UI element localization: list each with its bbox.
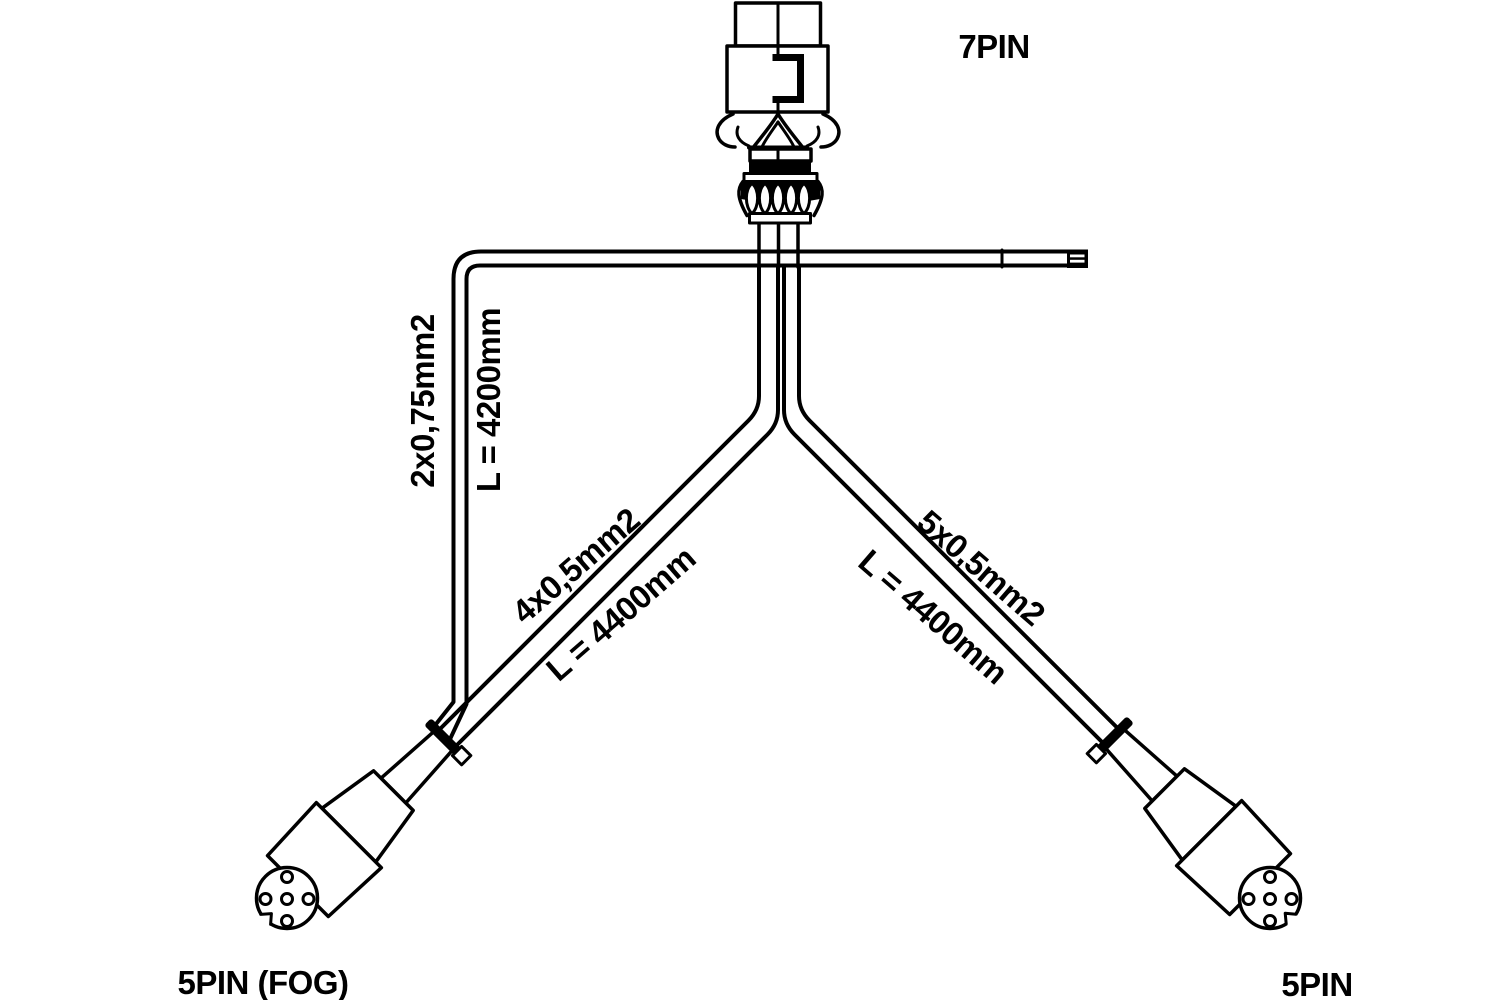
label-5pin-fog: 5PIN (FOG): [177, 964, 348, 1000]
pinface-5pin-fog: [257, 868, 318, 929]
label-7pin: 7PIN: [958, 28, 1029, 65]
wiring-harness-diagram: 7PIN 2x0,75mm2 L = 4200mm 4x0,5mm2 L = 4…: [0, 0, 1500, 1000]
pinface-5pin-right: [1240, 868, 1301, 929]
label-spec-2x075: 2x0,75mm2: [404, 314, 441, 488]
branch-cables: [441, 266, 1122, 747]
plug-skirt: [717, 114, 839, 148]
wiring-diagram-page: 7PIN 2x0,75mm2 L = 4200mm 4x0,5mm2 L = 4…: [0, 0, 1500, 1000]
right-branch-inner-line: [784, 266, 1104, 744]
cable-end-terminal: [1067, 250, 1088, 269]
plug-cable-gland: [739, 174, 822, 224]
connector-7pin: [717, 3, 839, 267]
plug-collar: [750, 149, 811, 161]
label-5pin-right: 5PIN: [1281, 966, 1352, 1000]
label-length-4200: L = 4200mm: [470, 308, 507, 492]
connector-7pin-wires: [759, 223, 798, 267]
plug-seal-band: [749, 161, 811, 174]
